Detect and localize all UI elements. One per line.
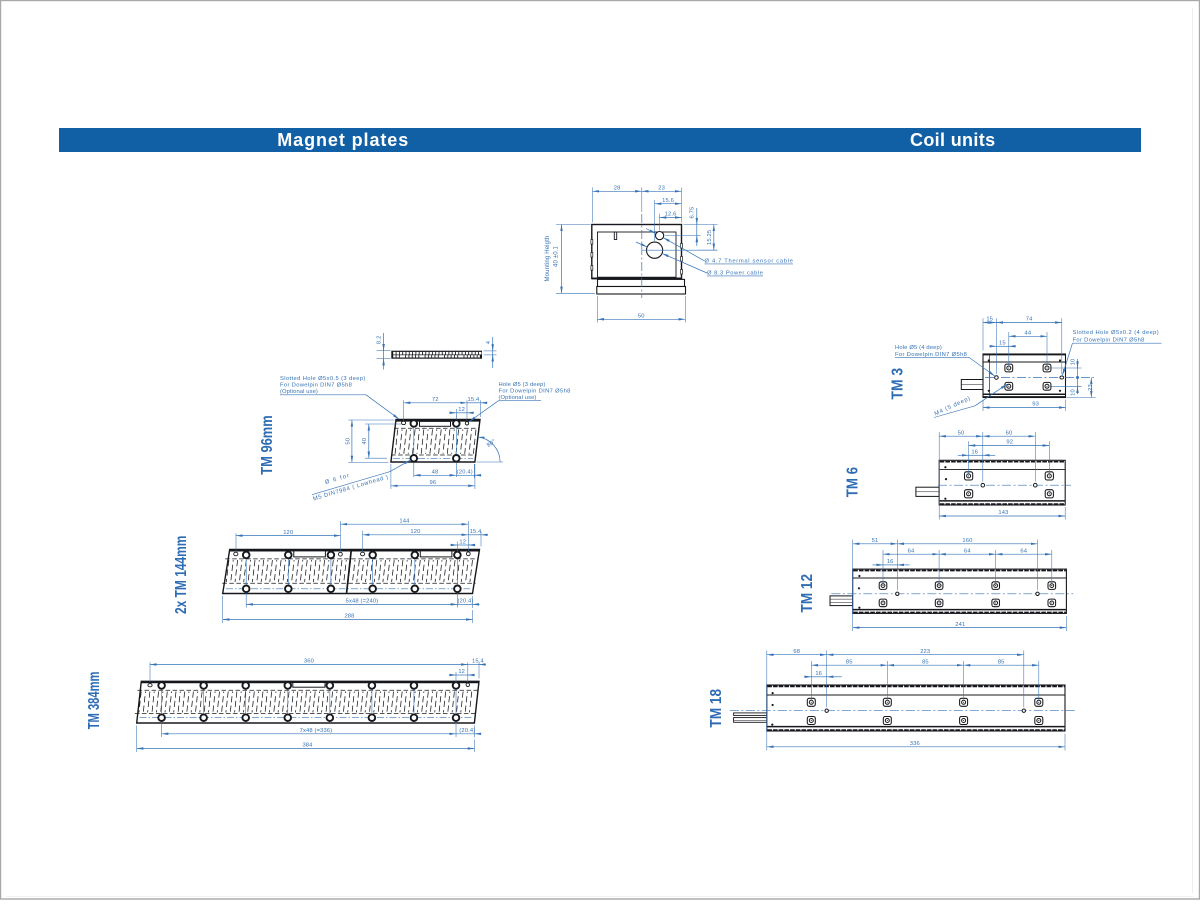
svg-text:96: 96: [430, 480, 437, 486]
svg-text:64: 64: [964, 548, 971, 554]
svg-text:For Dowelpin DIN7 Ø5h8: For Dowelpin DIN7 Ø5h8: [1073, 338, 1145, 344]
svg-text:For Dowelpin DIN7 Ø5h8: For Dowelpin DIN7 Ø5h8: [499, 388, 571, 394]
svg-text:15.6: 15.6: [662, 198, 674, 204]
svg-text:68: 68: [793, 649, 800, 655]
svg-text:10: 10: [1071, 389, 1077, 396]
svg-text:TM 18: TM 18: [708, 689, 725, 728]
svg-text:(20.4): (20.4): [459, 728, 475, 734]
svg-text:6.75: 6.75: [690, 207, 696, 219]
svg-text:15.4: 15.4: [470, 529, 483, 535]
svg-text:85: 85: [998, 659, 1005, 665]
svg-text:15: 15: [999, 340, 1006, 346]
svg-text:TM 384mm: TM 384mm: [86, 672, 103, 730]
svg-text:23: 23: [658, 186, 665, 192]
svg-text:Hole Ø5 (4 deep): Hole Ø5 (4 deep): [895, 345, 942, 351]
svg-text:12: 12: [458, 407, 465, 413]
svg-text:51: 51: [872, 538, 879, 544]
svg-text:120: 120: [283, 530, 293, 536]
svg-text:50: 50: [638, 314, 645, 320]
svg-text:160: 160: [962, 538, 972, 544]
svg-text:336: 336: [910, 741, 920, 747]
svg-text:7x48 (=336): 7x48 (=336): [300, 728, 333, 734]
svg-text:93: 93: [1032, 402, 1039, 408]
svg-text:50: 50: [958, 430, 965, 436]
svg-text:15: 15: [986, 317, 993, 323]
svg-text:2x TM 144mm: 2x TM 144mm: [173, 536, 190, 614]
svg-text:16: 16: [971, 449, 978, 455]
svg-text:16: 16: [815, 671, 822, 677]
svg-text:23: 23: [1088, 384, 1094, 391]
svg-text:384: 384: [302, 743, 313, 749]
svg-text:(20.4): (20.4): [457, 598, 473, 604]
svg-text:44: 44: [1025, 331, 1032, 337]
svg-text:Ø 4.7 Thermal sensor cable: Ø 4.7 Thermal sensor cable: [705, 258, 794, 264]
svg-text:15.4: 15.4: [472, 659, 485, 665]
svg-text:40: 40: [362, 438, 368, 445]
svg-text:For Dowelpin DIN7 Ø5h8: For Dowelpin DIN7 Ø5h8: [280, 382, 352, 388]
svg-text:85: 85: [846, 659, 853, 665]
svg-text:Mounting Heigth: Mounting Heigth: [545, 236, 551, 282]
svg-text:40 ±0.1: 40 ±0.1: [554, 245, 560, 267]
svg-text:92: 92: [1006, 440, 1013, 446]
svg-text:15.25: 15.25: [707, 230, 713, 245]
svg-text:241: 241: [955, 622, 965, 628]
svg-text:TM 6: TM 6: [844, 467, 861, 497]
svg-text:TM 3: TM 3: [889, 368, 906, 400]
svg-text:Hole Ø5 (3 deep): Hole Ø5 (3 deep): [499, 382, 546, 388]
svg-text:223: 223: [920, 649, 930, 655]
svg-text:12: 12: [459, 539, 466, 545]
svg-text:64: 64: [908, 548, 915, 554]
svg-text:Slotted Hole Ø5x0.5 (3 deep): Slotted Hole Ø5x0.5 (3 deep): [280, 376, 366, 382]
svg-text:5x48 (=240): 5x48 (=240): [346, 599, 379, 605]
svg-text:10: 10: [1071, 359, 1077, 366]
svg-text:(Optional use): (Optional use): [280, 389, 318, 395]
svg-text:8.2: 8.2: [376, 336, 382, 345]
svg-text:Ø 8.3 Power cable: Ø 8.3 Power cable: [707, 270, 763, 276]
svg-text:(Optional use): (Optional use): [499, 395, 537, 401]
svg-text:143: 143: [998, 510, 1008, 516]
svg-text:Coil units: Coil units: [910, 130, 996, 150]
svg-text:TM 12: TM 12: [799, 574, 816, 613]
svg-text:144: 144: [399, 518, 410, 524]
svg-text:12: 12: [458, 669, 465, 675]
svg-text:12.6: 12.6: [665, 212, 677, 218]
svg-text:(20.4): (20.4): [457, 469, 473, 475]
svg-text:64: 64: [1020, 548, 1027, 554]
svg-text:For Dowelpin DIN7 Ø5h8: For Dowelpin DIN7 Ø5h8: [895, 352, 967, 358]
svg-text:16: 16: [887, 559, 894, 565]
svg-text:288: 288: [344, 614, 354, 620]
svg-text:120: 120: [410, 529, 420, 535]
svg-text:85: 85: [922, 659, 929, 665]
svg-text:TM 96mm: TM 96mm: [259, 415, 276, 475]
svg-text:15.4: 15.4: [468, 397, 481, 403]
svg-text:28: 28: [614, 186, 621, 192]
svg-text:60: 60: [1006, 430, 1013, 436]
svg-text:74: 74: [1026, 317, 1033, 323]
svg-text:48: 48: [432, 470, 439, 476]
svg-text:72: 72: [432, 397, 439, 403]
svg-text:50: 50: [345, 438, 351, 445]
svg-text:Magnet plates: Magnet plates: [277, 130, 409, 150]
svg-text:Slotted Hole Ø5x0.2 (4 deep): Slotted Hole Ø5x0.2 (4 deep): [1073, 330, 1159, 336]
svg-text:360: 360: [304, 659, 314, 665]
